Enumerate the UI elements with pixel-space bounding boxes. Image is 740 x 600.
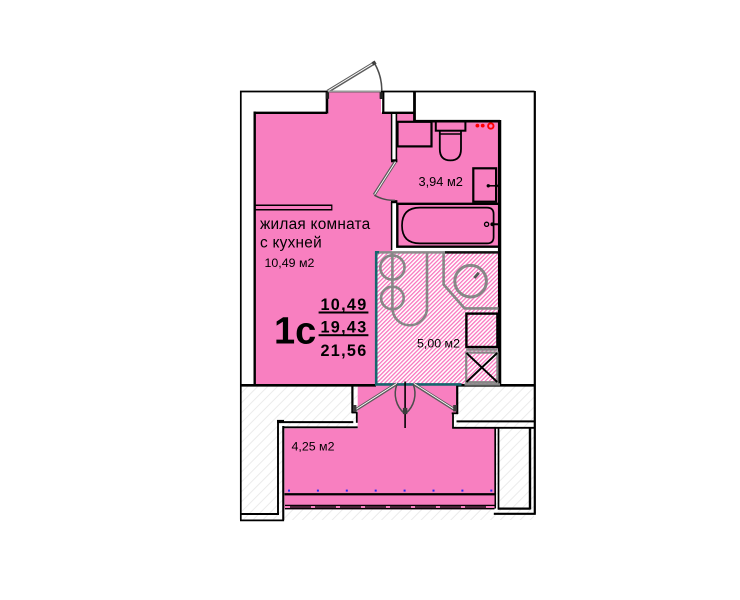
svg-text:жилая комната: жилая комната (260, 216, 371, 233)
svg-text:10,49 м2: 10,49 м2 (265, 256, 315, 270)
svg-text:с кухней: с кухней (260, 235, 322, 252)
svg-text:1с: 1с (274, 311, 316, 353)
svg-text:19,43: 19,43 (320, 319, 367, 337)
svg-text:5,00 м2: 5,00 м2 (417, 336, 460, 350)
svg-text:21,56: 21,56 (320, 342, 367, 360)
svg-text:10,49: 10,49 (320, 296, 367, 314)
svg-text:3,94 м2: 3,94 м2 (419, 174, 463, 189)
svg-text:4,25 м2: 4,25 м2 (292, 439, 335, 453)
